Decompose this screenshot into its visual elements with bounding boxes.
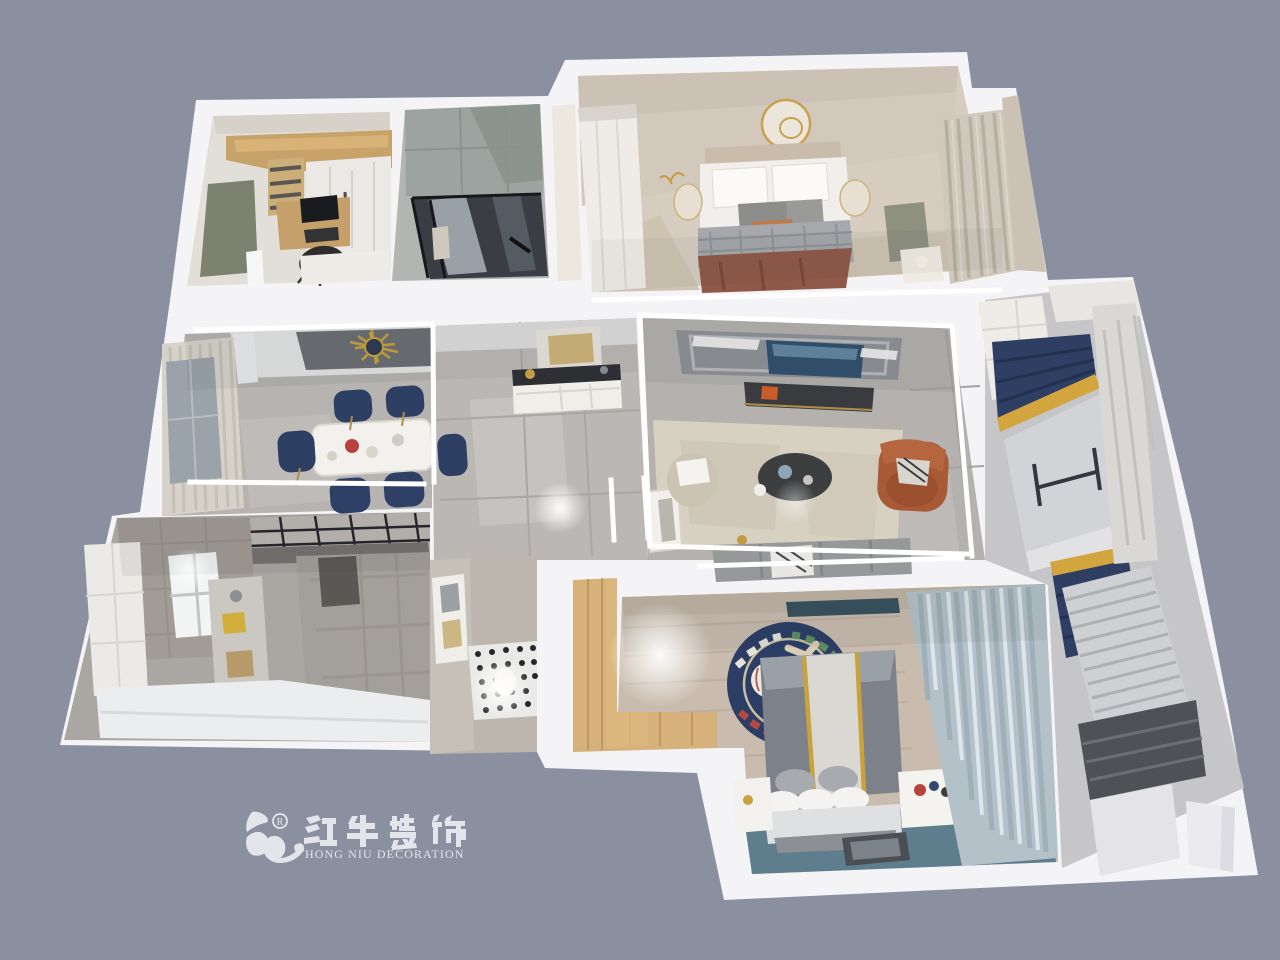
svg-text:R: R: [277, 817, 284, 828]
svg-text:HONG NIU DECORATION: HONG NIU DECORATION: [305, 847, 465, 861]
